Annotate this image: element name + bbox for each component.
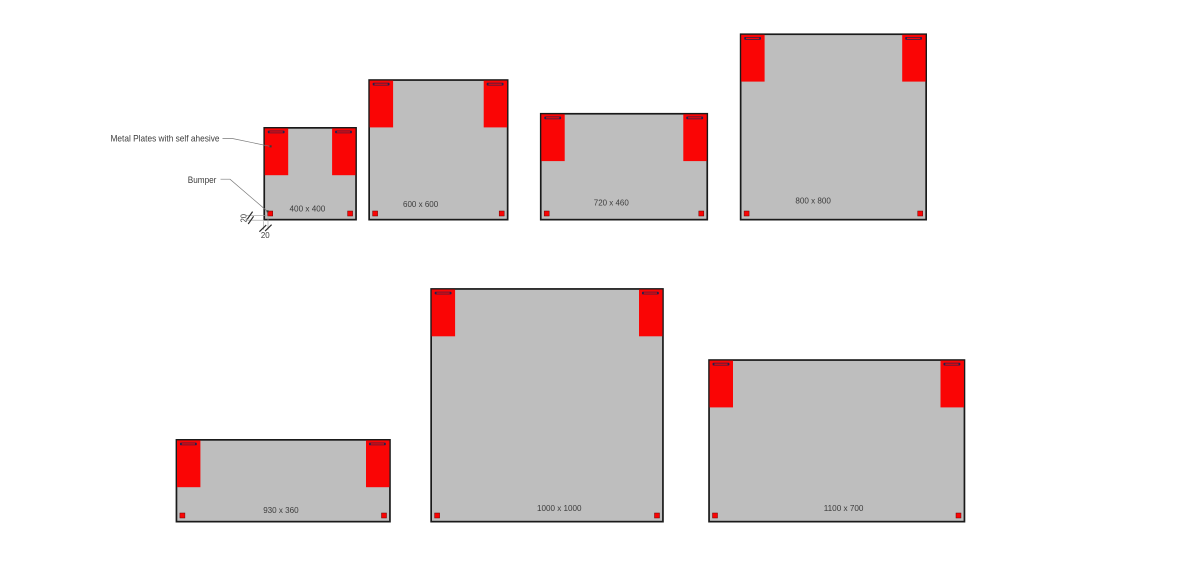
svg-text:720 x 460: 720 x 460 — [594, 197, 629, 207]
svg-text:400 x 400: 400 x 400 — [290, 203, 326, 213]
svg-text:20: 20 — [240, 213, 249, 222]
svg-text:20: 20 — [261, 231, 270, 240]
svg-text:600 x 600: 600 x 600 — [403, 199, 438, 209]
svg-text:800 x 800: 800 x 800 — [795, 196, 831, 206]
svg-text:Bumper: Bumper — [188, 175, 217, 185]
svg-text:1000 x 1000: 1000 x 1000 — [537, 503, 582, 513]
svg-text:Metal Plates with self ahesive: Metal Plates with self ahesive — [111, 134, 220, 144]
svg-text:930 x 360: 930 x 360 — [263, 505, 299, 515]
svg-text:1100 x 700: 1100 x 700 — [824, 503, 864, 513]
